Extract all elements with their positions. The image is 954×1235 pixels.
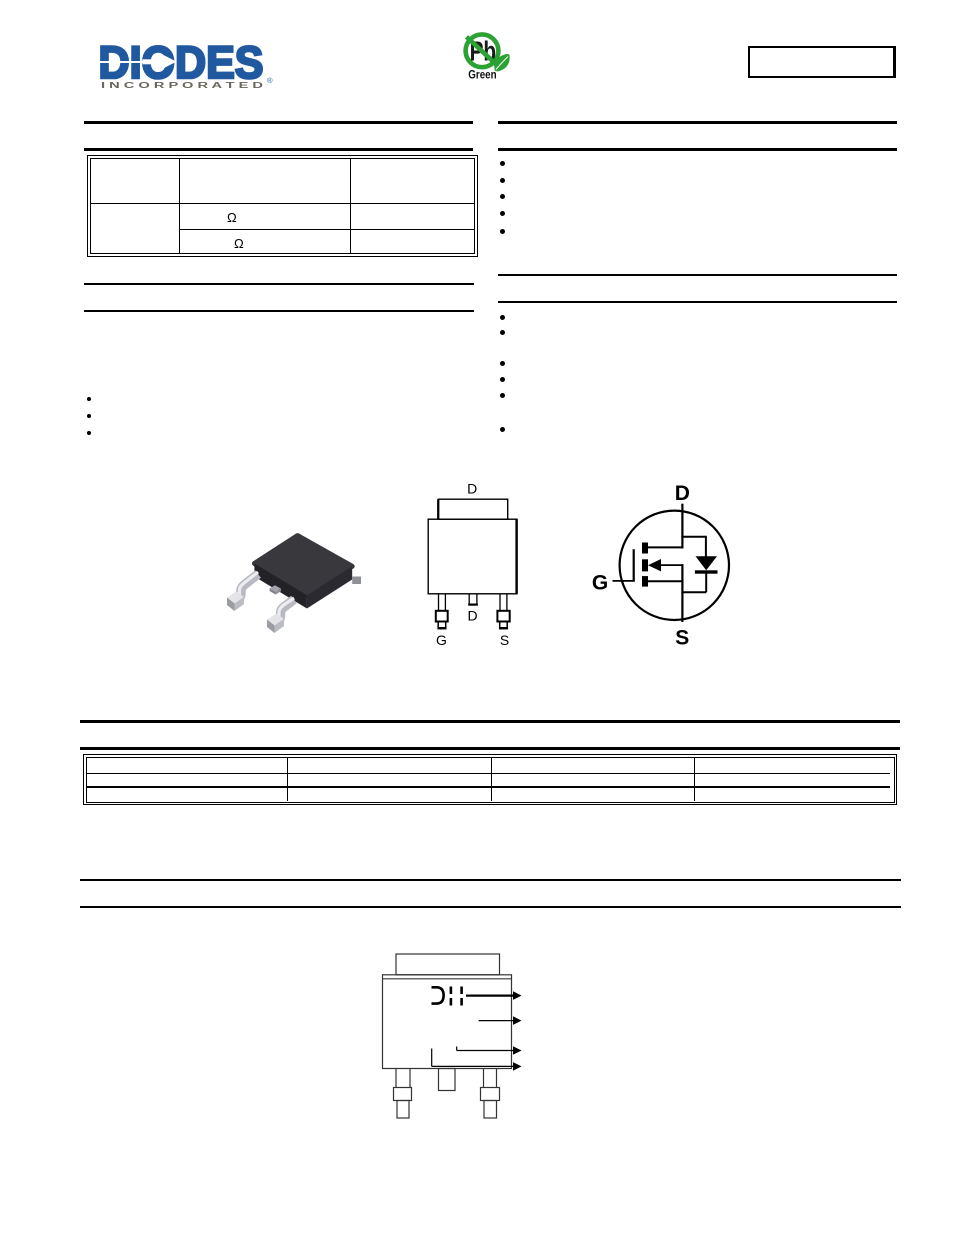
svg-text:D: D [675, 482, 690, 505]
svg-text:D: D [468, 608, 478, 624]
svg-text:D: D [467, 480, 477, 496]
svg-text:®: ® [267, 76, 273, 85]
svg-text:G: G [592, 572, 608, 595]
svg-text:G: G [436, 632, 447, 648]
svg-text:S: S [675, 627, 689, 650]
svg-text:S: S [500, 632, 509, 648]
svg-text:I N C O R P O R A T E D: I N C O R P O R A T E D [101, 81, 263, 90]
svg-text:Green: Green [468, 70, 496, 82]
